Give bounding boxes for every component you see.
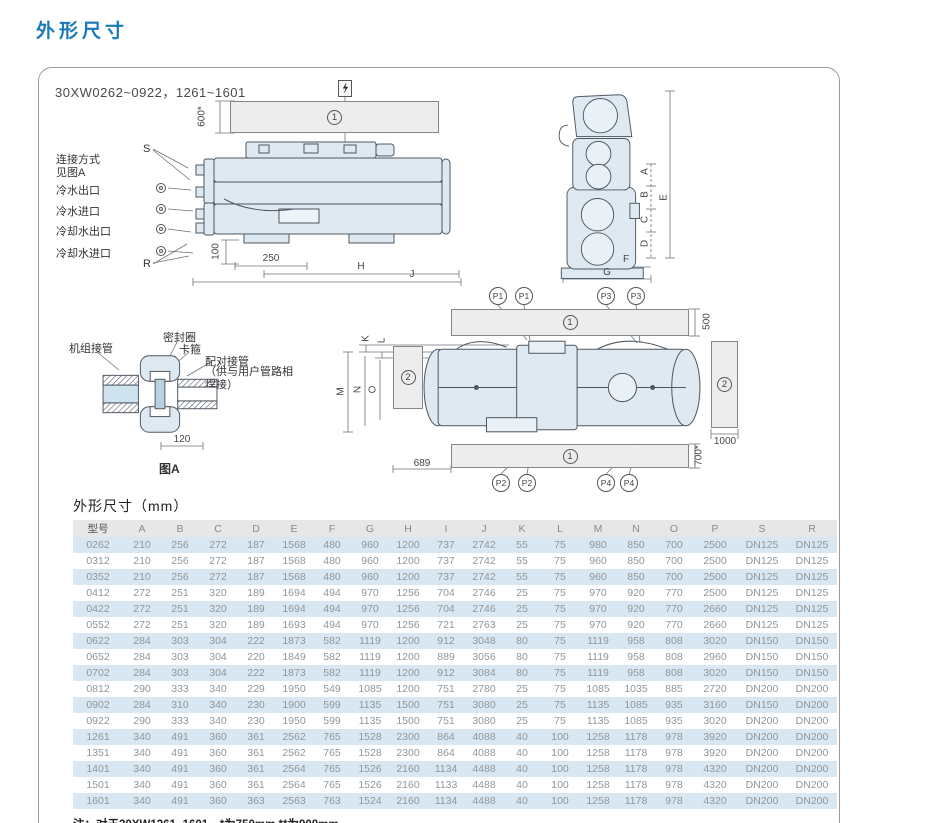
zone-2-badge: 2 (717, 377, 732, 392)
table-cell: 480 (313, 553, 351, 569)
header-row: 型号ABCDEFGHIJKLMNOPSR (73, 520, 837, 537)
dim-F: F (614, 254, 638, 265)
dimension-drawing-panel: 30XW0262~0922，1261~1601 (38, 67, 840, 823)
zone-1-badge: 1 (563, 449, 578, 464)
table-cell: 360 (199, 793, 237, 809)
table-cell: 2160 (389, 793, 427, 809)
table-cell: 970 (579, 601, 617, 617)
table-cell: 80 (503, 665, 541, 681)
table-cell: 1528 (351, 745, 389, 761)
table-cell: 1119 (351, 665, 389, 681)
table-cell: 808 (655, 665, 693, 681)
table-cell: 2500 (693, 537, 737, 553)
fig-a-caption: 图A (159, 460, 180, 477)
table-cell: 360 (199, 729, 237, 745)
table-cell: 763 (313, 793, 351, 809)
table-cell: 100 (541, 761, 579, 777)
column-header: S (737, 520, 787, 537)
fig-a-mating-note: （供与用户管路相焊接） (205, 366, 301, 392)
table-cell: 1134 (427, 793, 465, 809)
table-cell: 491 (161, 793, 199, 809)
table-cell: 4488 (465, 761, 503, 777)
table-cell: 960 (351, 569, 389, 585)
r-connection-label: R (143, 258, 151, 270)
table-cell: 310 (161, 697, 199, 713)
table-cell: 320 (199, 601, 237, 617)
column-header: R (787, 520, 837, 537)
table-cell: DN125 (787, 553, 837, 569)
table-cell: 2300 (389, 729, 427, 745)
table-cell: 1528 (351, 729, 389, 745)
table-cell: 970 (579, 617, 617, 633)
table-cell: 40 (503, 777, 541, 793)
table-cell: 1950 (275, 681, 313, 697)
table-cell: 1178 (617, 761, 655, 777)
table-cell: 885 (655, 681, 693, 697)
table-cell: DN125 (787, 617, 837, 633)
column-header: 型号 (73, 520, 123, 537)
table-cell: 3920 (693, 745, 737, 761)
table-cell: 1256 (389, 617, 427, 633)
table-cell: 1258 (579, 761, 617, 777)
table-row: 0312210256272187156848096012007372742557… (73, 553, 837, 569)
table-cell: 2720 (693, 681, 737, 697)
column-header: K (503, 520, 541, 537)
table-cell: 4088 (465, 729, 503, 745)
table-cell: 970 (351, 601, 389, 617)
table-row: 0412272251320189169449497012567042746257… (73, 585, 837, 601)
table-cell: 912 (427, 633, 465, 649)
table-cell: 361 (237, 777, 275, 793)
table-cell: DN200 (787, 761, 837, 777)
table-cell: 55 (503, 553, 541, 569)
table-cell: DN125 (787, 601, 837, 617)
table-cell: 491 (161, 777, 199, 793)
table-cell: 100 (541, 793, 579, 809)
table-cell: 582 (313, 633, 351, 649)
table-cell: 1950 (275, 713, 313, 729)
table-cell: 1119 (579, 665, 617, 681)
column-header: I (427, 520, 465, 537)
table-row: 1261340491360361256276515282300864408840… (73, 729, 837, 745)
column-header: F (313, 520, 351, 537)
table-cell: 4320 (693, 761, 737, 777)
table-cell: 284 (123, 649, 161, 665)
table-cell: 229 (237, 681, 275, 697)
port-connection-marker (156, 224, 166, 234)
table-cell: 1200 (389, 553, 427, 569)
table-cell: 340 (123, 745, 161, 761)
dim-1000: 1000 (707, 436, 743, 447)
table-cell: 2660 (693, 601, 737, 617)
table-cell: DN125 (737, 585, 787, 601)
table-cell: DN200 (787, 729, 837, 745)
table-cell: 1256 (389, 601, 427, 617)
table-cell: 40 (503, 745, 541, 761)
table-cell: 765 (313, 745, 351, 761)
table-cell: 960 (579, 569, 617, 585)
table-cell: 360 (199, 777, 237, 793)
table-cell: DN200 (787, 745, 837, 761)
dim-M: M (336, 374, 347, 410)
table-cell: 770 (655, 585, 693, 601)
table-cell: 303 (161, 633, 199, 649)
table-cell: 304 (199, 649, 237, 665)
table-cell: 284 (123, 697, 161, 713)
table-cell: 1258 (579, 777, 617, 793)
table-cell: 958 (617, 633, 655, 649)
table-cell: 284 (123, 665, 161, 681)
table-cell: 2562 (275, 745, 313, 761)
table-cell: 3020 (693, 665, 737, 681)
table-cell: 272 (199, 553, 237, 569)
table-cell: 970 (579, 585, 617, 601)
table-cell: 1119 (351, 649, 389, 665)
table-cell: 189 (237, 601, 275, 617)
table-cell: DN125 (737, 569, 787, 585)
clearance-block-right: 2 (711, 341, 738, 428)
table-cell: 333 (161, 681, 199, 697)
table-cell: DN200 (787, 697, 837, 713)
table-cell: 2742 (465, 569, 503, 585)
table-cell: 1178 (617, 745, 655, 761)
p4-marker: P4 (620, 474, 638, 492)
table-cell: 1351 (73, 745, 123, 761)
table-cell: 3084 (465, 665, 503, 681)
table-cell: 4320 (693, 777, 737, 793)
table-cell: 304 (199, 633, 237, 649)
port-connection-marker (156, 183, 166, 193)
table-cell: 0922 (73, 713, 123, 729)
table-cell: 1135 (351, 697, 389, 713)
table-cell: 3160 (693, 697, 737, 713)
table-cell: 765 (313, 729, 351, 745)
table-cell: DN125 (787, 537, 837, 553)
table-cell: 251 (161, 617, 199, 633)
dim-H: H (349, 261, 373, 272)
table-cell: 340 (123, 793, 161, 809)
table-cell: 935 (655, 713, 693, 729)
table-cell: 889 (427, 649, 465, 665)
page-title: 外形尺寸 (36, 16, 128, 43)
connection-label-line2: 见图A (56, 164, 85, 180)
table-cell: DN125 (737, 601, 787, 617)
model-range-label: 30XW0262~0922，1261~1601 (55, 82, 246, 101)
table-cell: 222 (237, 665, 275, 681)
table-cell: 100 (541, 729, 579, 745)
table-cell: 272 (123, 617, 161, 633)
table-cell: 0622 (73, 633, 123, 649)
clearance-band-plan-top: 1 (451, 309, 689, 336)
table-cell: 1200 (389, 681, 427, 697)
dim-100: 100 (211, 234, 222, 270)
table-cell: 980 (579, 537, 617, 553)
table-cell: 960 (579, 553, 617, 569)
table-cell: 0312 (73, 553, 123, 569)
table-cell: DN125 (737, 553, 787, 569)
table-cell: 1694 (275, 601, 313, 617)
table-cell: 251 (161, 601, 199, 617)
table-cell: 582 (313, 665, 351, 681)
column-header: D (237, 520, 275, 537)
table-cell: 1200 (389, 569, 427, 585)
table-row: 1601340491360363256376315242160113444884… (73, 793, 837, 809)
table-row: 0652284303304220184958211191200889305680… (73, 649, 837, 665)
table-row: 0922290333340230195059911351500751308025… (73, 713, 837, 729)
table-cell: 1261 (73, 729, 123, 745)
table-cell: 494 (313, 601, 351, 617)
table-cell: 256 (161, 537, 199, 553)
table-cell: DN200 (737, 793, 787, 809)
table-cell: 189 (237, 585, 275, 601)
table-cell: 1200 (389, 649, 427, 665)
table-cell: 25 (503, 601, 541, 617)
table-cell: 272 (123, 601, 161, 617)
table-cell: 935 (655, 697, 693, 713)
table-cell: 340 (199, 697, 237, 713)
table-cell: DN200 (737, 729, 787, 745)
table-cell: 2160 (389, 777, 427, 793)
table-cell: 0702 (73, 665, 123, 681)
table-row: 0262210256272187156848096012007372742557… (73, 537, 837, 553)
table-cell: 333 (161, 713, 199, 729)
table-cell: 75 (541, 649, 579, 665)
column-header: M (579, 520, 617, 537)
table-cell: 187 (237, 537, 275, 553)
table-cell: 25 (503, 681, 541, 697)
dim-250: 250 (255, 253, 287, 264)
table-cell: 700 (655, 569, 693, 585)
table-cell: 1568 (275, 553, 313, 569)
table-cell: 25 (503, 713, 541, 729)
table-cell: 958 (617, 649, 655, 665)
table-cell: 1568 (275, 537, 313, 553)
p1-marker: P1 (489, 287, 507, 305)
table-cell: 75 (541, 537, 579, 553)
table-cell: 2660 (693, 617, 737, 633)
table-cell: 210 (123, 553, 161, 569)
table-cell: 75 (541, 569, 579, 585)
dim-top-clearance: 600* (197, 99, 208, 135)
table-cell: 360 (199, 745, 237, 761)
table-cell: 1135 (579, 697, 617, 713)
dim-120: 120 (167, 434, 197, 445)
table-cell: DN125 (787, 585, 837, 601)
table-head: 型号ABCDEFGHIJKLMNOPSR (73, 520, 837, 537)
table-cell: 1873 (275, 665, 313, 681)
table-cell: 751 (427, 697, 465, 713)
table-cell: 970 (351, 585, 389, 601)
table-cell: 582 (313, 649, 351, 665)
table-cell: 2746 (465, 585, 503, 601)
table-cell: 704 (427, 585, 465, 601)
table-cell: 2742 (465, 537, 503, 553)
table-cell: DN125 (737, 537, 787, 553)
table-cell: 2742 (465, 553, 503, 569)
table-cell: 0552 (73, 617, 123, 633)
table-cell: 256 (161, 553, 199, 569)
table-cell: 1178 (617, 793, 655, 809)
table-cell: 75 (541, 601, 579, 617)
table-cell: 751 (427, 681, 465, 697)
table-row: 1501340491360361256476515262160113344884… (73, 777, 837, 793)
dim-N: N (353, 372, 364, 408)
table-cell: 210 (123, 537, 161, 553)
p3-marker: P3 (627, 287, 645, 305)
table-cell: DN150 (787, 633, 837, 649)
table-cell: 864 (427, 745, 465, 761)
zone-1-badge: 1 (563, 315, 578, 330)
table-cell: 737 (427, 553, 465, 569)
table-cell: 1873 (275, 633, 313, 649)
table-cell: DN125 (787, 569, 837, 585)
table-cell: 920 (617, 617, 655, 633)
table-cell: 75 (541, 697, 579, 713)
table-cell: 40 (503, 761, 541, 777)
table-cell: 4488 (465, 793, 503, 809)
table-cell: 1256 (389, 585, 427, 601)
table-cell: 978 (655, 761, 693, 777)
table-cell: DN200 (787, 777, 837, 793)
table-cell: 1693 (275, 617, 313, 633)
table-cell: 210 (123, 569, 161, 585)
table-cell: 304 (199, 665, 237, 681)
table-cell: 751 (427, 713, 465, 729)
dim-500: 500 (702, 304, 713, 340)
table-cell: 3020 (693, 633, 737, 649)
table-cell: 704 (427, 601, 465, 617)
column-header: N (617, 520, 655, 537)
table-cell: 970 (351, 617, 389, 633)
table-cell: 1568 (275, 569, 313, 585)
table-cell: 480 (313, 537, 351, 553)
table-title: 外形尺寸（mm） (73, 496, 188, 516)
dim-D: D (640, 226, 651, 262)
column-header: E (275, 520, 313, 537)
table-row: 1351340491360361256276515282300864408840… (73, 745, 837, 761)
table-cell: 230 (237, 713, 275, 729)
table-cell: 1401 (73, 761, 123, 777)
table-cell: 187 (237, 569, 275, 585)
table-cell: 737 (427, 569, 465, 585)
table-cell: 770 (655, 617, 693, 633)
table-cell: 1258 (579, 729, 617, 745)
table-cell: 2960 (693, 649, 737, 665)
table-cell: 3080 (465, 697, 503, 713)
table-cell: 320 (199, 585, 237, 601)
table-cell: DN150 (737, 649, 787, 665)
table-cell: 2763 (465, 617, 503, 633)
table-cell: 1085 (617, 697, 655, 713)
table-cell: 491 (161, 729, 199, 745)
table-cell: 2563 (275, 793, 313, 809)
table-cell: 272 (199, 537, 237, 553)
table-cell: 491 (161, 745, 199, 761)
table-cell: 765 (313, 761, 351, 777)
table-cell: 75 (541, 665, 579, 681)
table-cell: 100 (541, 777, 579, 793)
table-cell: 2746 (465, 601, 503, 617)
table-cell: 1500 (389, 697, 427, 713)
table-cell: 1135 (351, 713, 389, 729)
dimensions-table: 型号ABCDEFGHIJKLMNOPSR 0262210256272187156… (73, 520, 837, 809)
table-cell: 599 (313, 713, 351, 729)
column-header: H (389, 520, 427, 537)
column-header: A (123, 520, 161, 537)
table-cell: 290 (123, 681, 161, 697)
table-cell: 363 (237, 793, 275, 809)
plan-view-drawing (416, 340, 708, 435)
dim-689: 689 (407, 458, 437, 469)
table-cell: 0812 (73, 681, 123, 697)
table-cell: 0422 (73, 601, 123, 617)
table-row: 0352210256272187156848096012007372742557… (73, 569, 837, 585)
p3-marker: P3 (597, 287, 615, 305)
table-cell: 40 (503, 729, 541, 745)
table-cell: 1085 (617, 713, 655, 729)
table-cell: 189 (237, 617, 275, 633)
dim-G: G (595, 267, 619, 278)
table-cell: 1526 (351, 777, 389, 793)
table-cell: 494 (313, 585, 351, 601)
table-cell: 3048 (465, 633, 503, 649)
table-row: 1401340491360361256476515262160113444884… (73, 761, 837, 777)
table-cell: 1119 (579, 649, 617, 665)
table-cell: 1524 (351, 793, 389, 809)
table-cell: 2562 (275, 729, 313, 745)
table-cell: 80 (503, 649, 541, 665)
table-cell: 220 (237, 649, 275, 665)
table-cell: 480 (313, 569, 351, 585)
p2-marker: P2 (492, 474, 510, 492)
table-cell: 2564 (275, 761, 313, 777)
table-cell: 1258 (579, 793, 617, 809)
p1-marker: P1 (515, 287, 533, 305)
table-cell: 320 (199, 617, 237, 633)
table-cell: 222 (237, 633, 275, 649)
table-cell: DN200 (787, 713, 837, 729)
column-header: G (351, 520, 389, 537)
table-cell: DN200 (787, 681, 837, 697)
dim-K: K (361, 321, 372, 357)
column-header: J (465, 520, 503, 537)
dim-J: J (400, 269, 424, 280)
table-cell: 960 (351, 537, 389, 553)
table-cell: 2780 (465, 681, 503, 697)
table-cell: 2500 (693, 569, 737, 585)
table-cell: 958 (617, 665, 655, 681)
table-cell: 75 (541, 681, 579, 697)
dimensions-table-wrap: 型号ABCDEFGHIJKLMNOPSR 0262210256272187156… (73, 520, 837, 809)
table-cell: 850 (617, 537, 655, 553)
table-cell: 340 (123, 729, 161, 745)
table-cell: 251 (161, 585, 199, 601)
table-cell: 2300 (389, 745, 427, 761)
table-cell: 808 (655, 633, 693, 649)
table-cell: 494 (313, 617, 351, 633)
table-cell: 920 (617, 585, 655, 601)
table-cell: 303 (161, 649, 199, 665)
table-cell: 100 (541, 745, 579, 761)
table-row: 0422272251320189169449497012567042746257… (73, 601, 837, 617)
table-cell: 272 (123, 585, 161, 601)
table-cell: 4088 (465, 745, 503, 761)
table-cell: 360 (199, 761, 237, 777)
table-cell: 808 (655, 649, 693, 665)
table-cell: 340 (199, 713, 237, 729)
table-cell: 1178 (617, 729, 655, 745)
table-cell: 75 (541, 585, 579, 601)
